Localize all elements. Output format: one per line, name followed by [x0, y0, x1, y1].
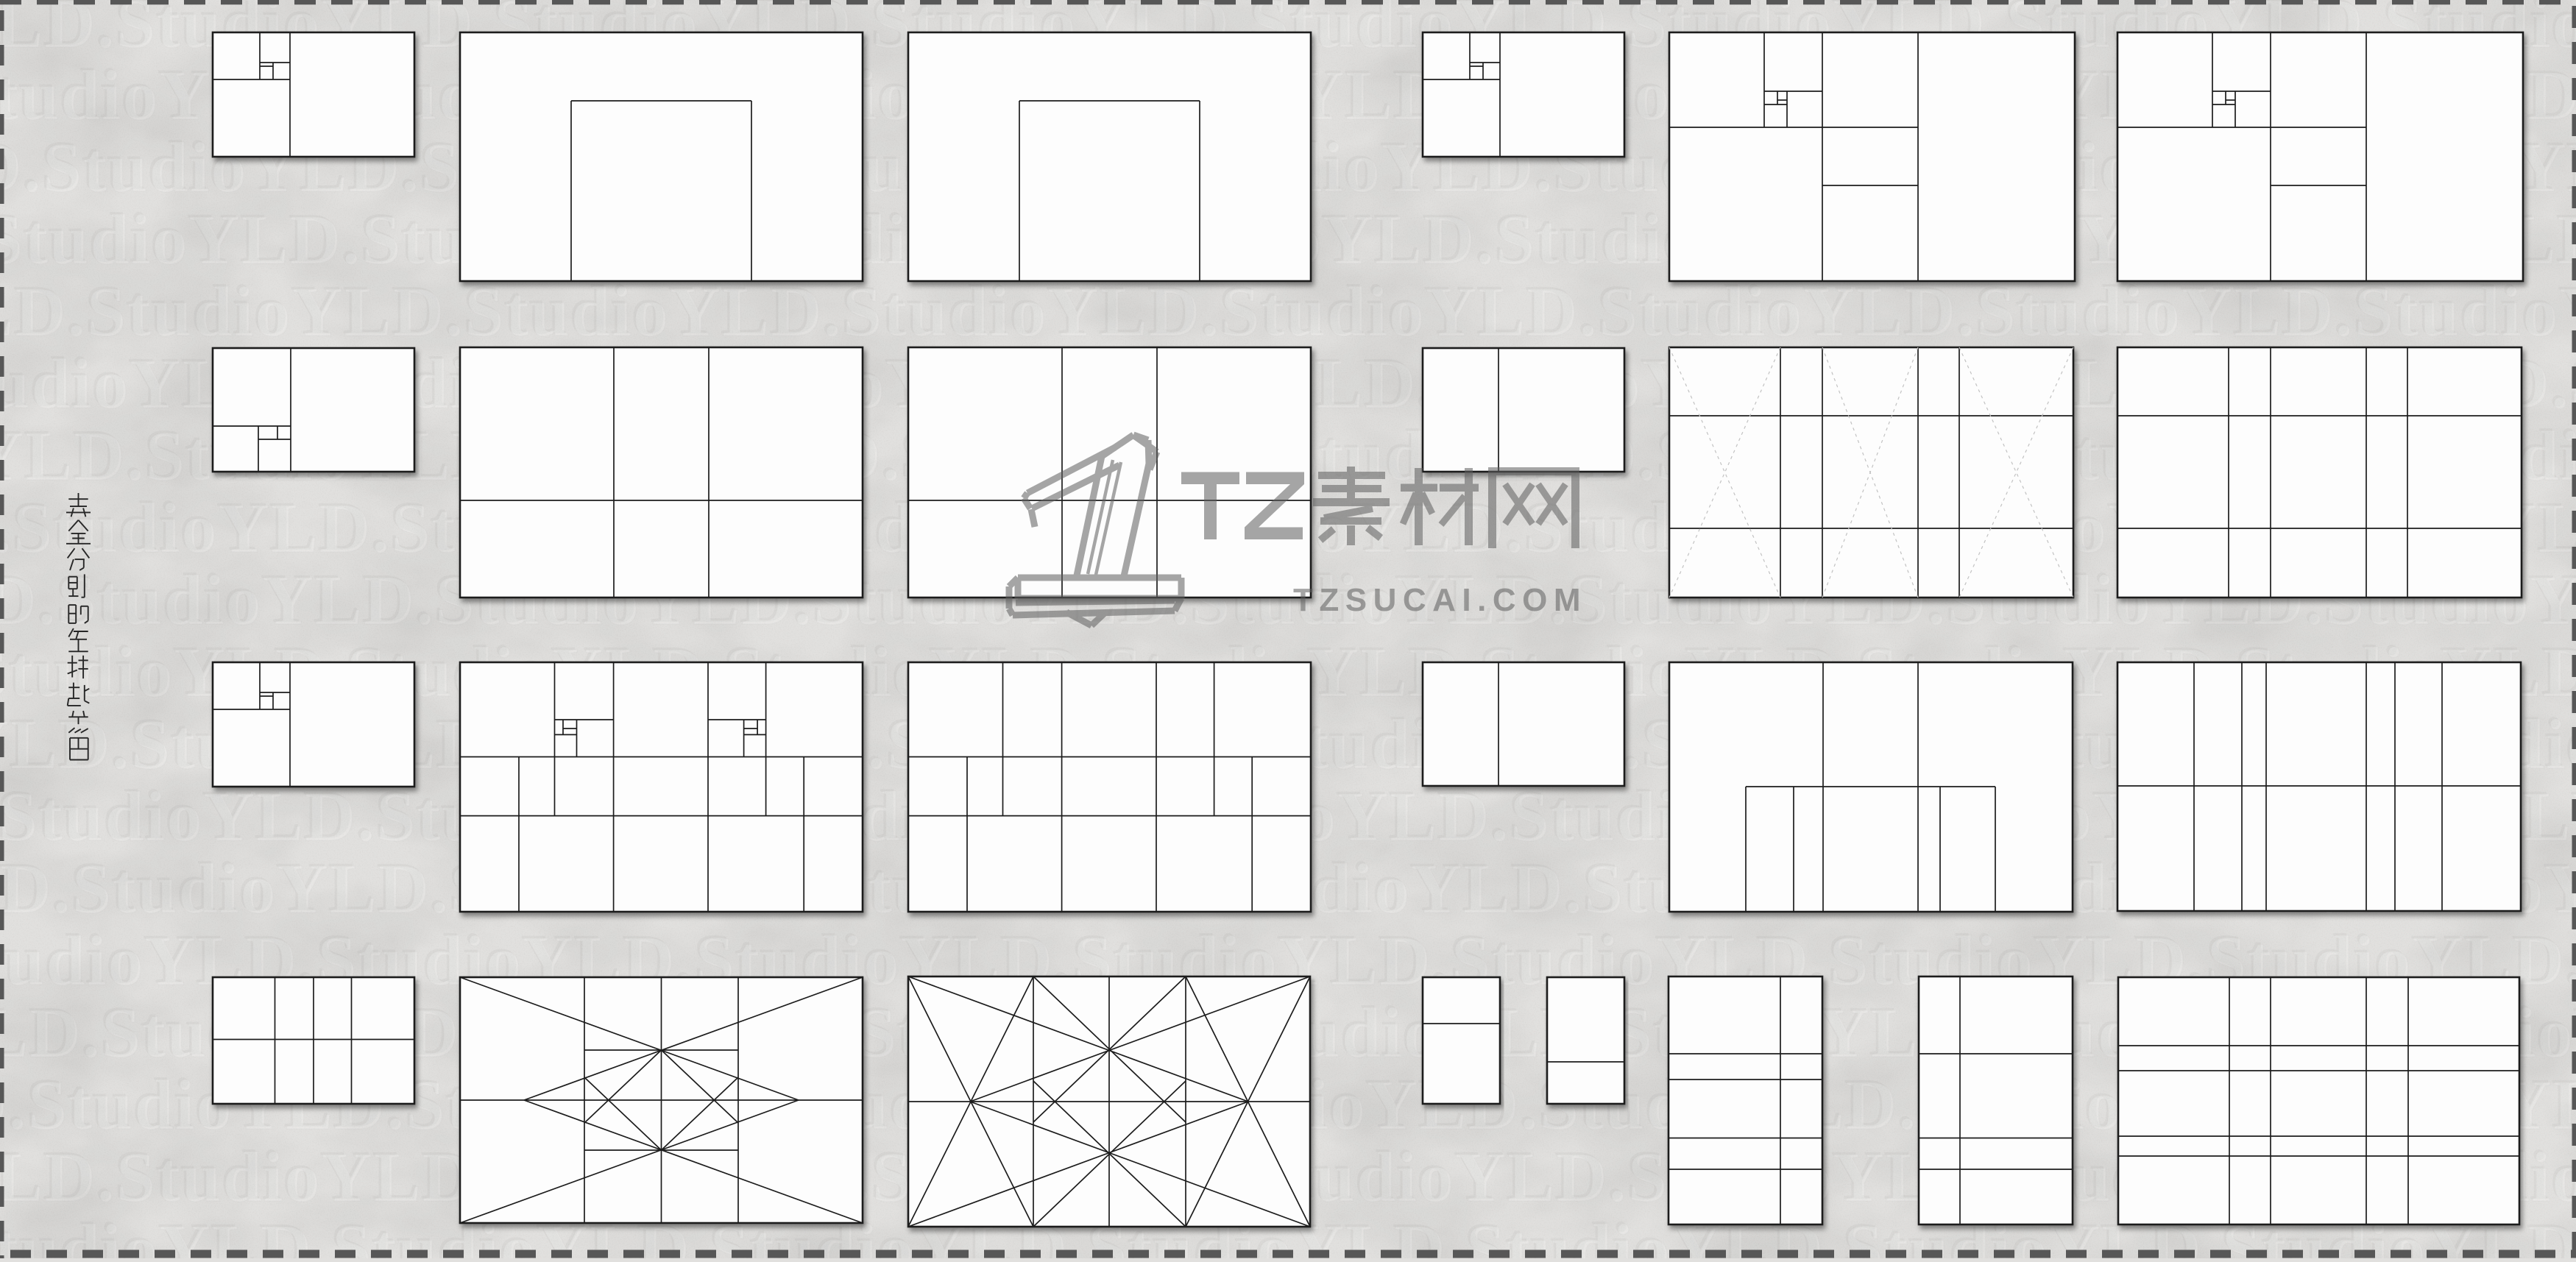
svg-text:TZSUCAI.COM: TZSUCAI.COM: [1293, 582, 1587, 618]
